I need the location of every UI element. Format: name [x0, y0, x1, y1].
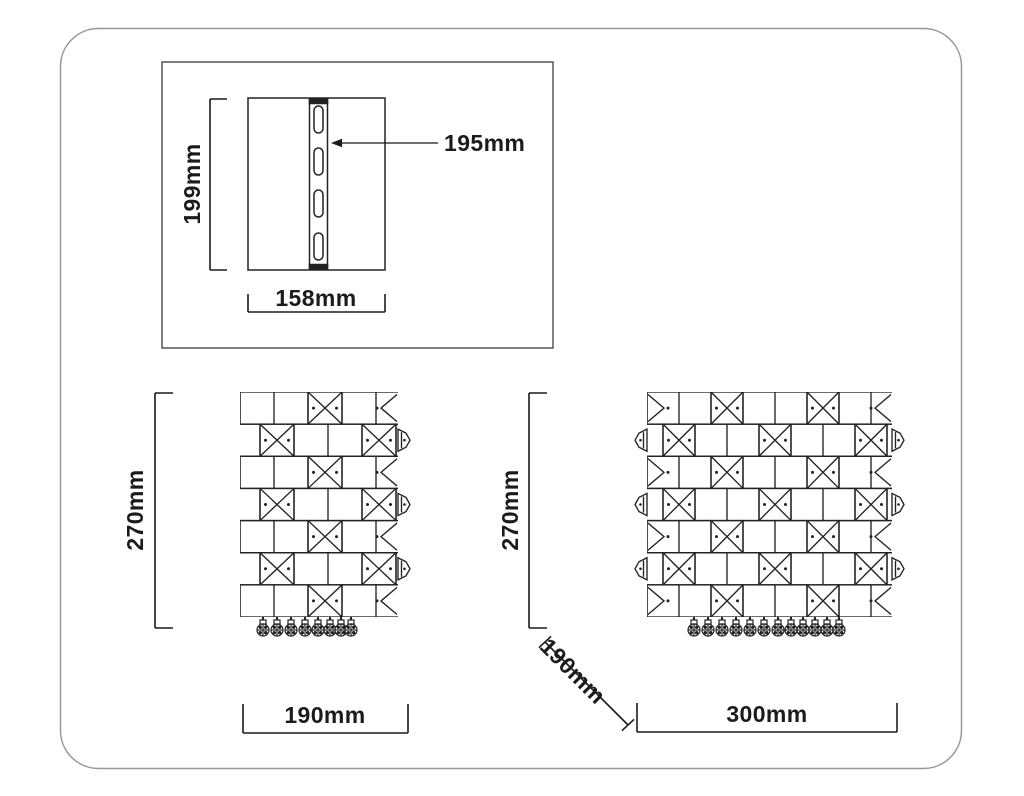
front-width-label: 300mm: [726, 701, 807, 727]
backplate-width-label: 158mm: [275, 285, 356, 311]
dimension-diagram: 199mm 158mm 195mm 270mm 190mm: [0, 0, 1024, 796]
backplate-panel-box: [162, 62, 553, 348]
front-height-label: 270mm: [497, 469, 523, 550]
side-height-label: 270mm: [122, 469, 148, 550]
bracket-top-cap: [310, 99, 328, 104]
side-width-label: 190mm: [284, 702, 365, 728]
bracket-length-label: 195mm: [444, 130, 525, 156]
spec-sheet: 199mm 158mm 195mm 270mm 190mm: [0, 0, 1024, 796]
bracket-bottom-cap: [310, 265, 328, 270]
backplate-height-label: 199mm: [179, 143, 205, 224]
